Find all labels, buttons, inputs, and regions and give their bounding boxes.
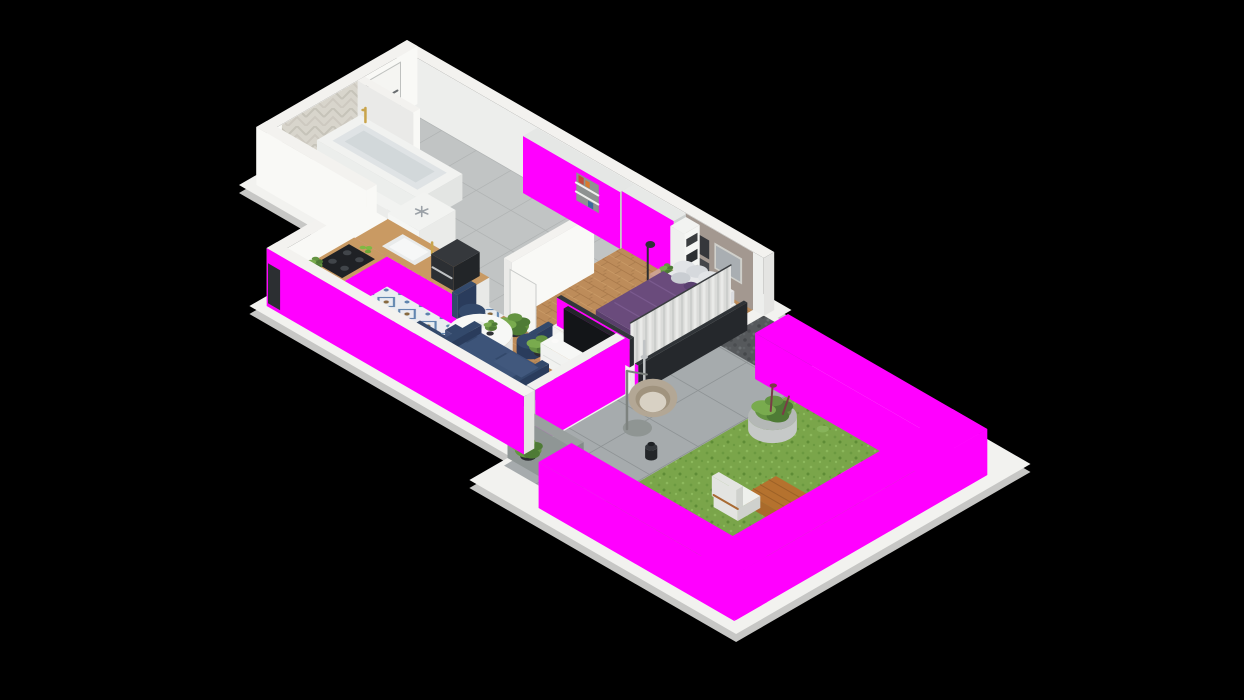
dining-chair-back-side-y: [452, 292, 457, 319]
facade-main-side-x: [524, 391, 534, 455]
green-apple: [365, 250, 371, 254]
planter-plants-leaf: [765, 396, 783, 407]
scene-root: [239, 40, 1031, 642]
dining-bouquet-leaf: [486, 322, 492, 326]
green-apple: [366, 246, 373, 250]
planter-plants-leaf: [758, 405, 776, 416]
planter-red-leaf-top: [770, 383, 777, 387]
lounge-chair-backrest-side-x: [736, 486, 743, 510]
dining-bouquet-leaf: [489, 326, 497, 330]
nightstand-plant-leaf: [662, 266, 668, 270]
wall-back-side-x: [764, 252, 774, 316]
floor-lamp-head: [645, 241, 655, 248]
cooktop-burner: [355, 257, 364, 262]
facade-window-slot: [268, 263, 280, 310]
cooktop-burner: [343, 250, 352, 255]
cooktop-burner: [328, 259, 337, 264]
cooktop-burner: [340, 266, 349, 271]
sideboard-decor: [551, 339, 558, 343]
outdoor-shower-head: [641, 355, 648, 359]
green-apple: [360, 246, 366, 250]
lantern-top: [648, 442, 655, 446]
floorplan-3d-render: Isometric 3D floor plan render of a one-…: [0, 0, 1244, 700]
dining-vase: [486, 331, 493, 335]
bed-pillow: [671, 272, 691, 283]
bathtub-spout: [361, 109, 366, 112]
lawn-tuft: [817, 426, 829, 433]
egg-chair-cushion: [640, 392, 667, 412]
floorplan-canvas: Isometric 3D floor plan render of a one-…: [0, 0, 1244, 700]
living-railing-side-x: [630, 337, 634, 368]
